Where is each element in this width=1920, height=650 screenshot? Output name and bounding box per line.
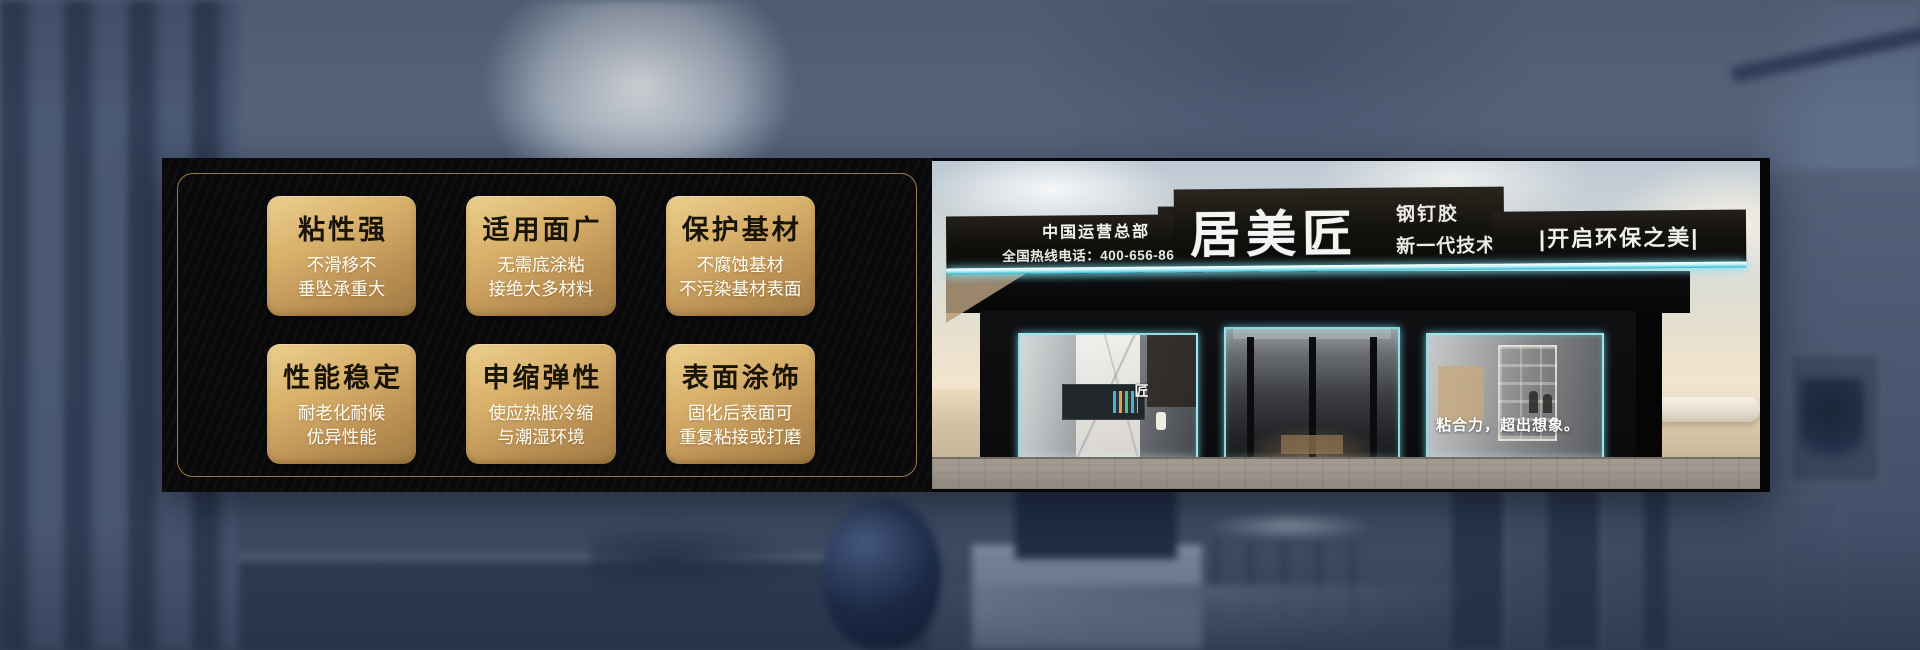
interior-figure [1543,394,1552,413]
feature-title: 申缩弹性 [482,356,602,395]
feature-line: 耐老化耐候 [298,402,386,426]
display-window-left: 匠 [1018,333,1198,465]
feature-card: 性能稳定 耐老化耐候 优异性能 [267,344,416,464]
feature-card: 申缩弹性 使应热胀冷缩 与潮湿环境 [466,344,615,464]
feature-line: 接绝大多材料 [488,278,593,302]
interior-shelf [1147,335,1196,407]
promo-banner: 粘性强 不滑移不 垂坠承重大 适用面广 无需底涂粘 接绝大多材料 保护基材 [162,158,1770,492]
banner-screenshot: 粘性强 不滑移不 垂坠承重大 适用面广 无需底涂粘 接绝大多材料 保护基材 [0,0,1920,650]
storefront-signage: 中国运营总部 全国热线电话：400-656-8678 居美匠 钢钉胶 新一代技术… [932,161,1760,289]
feature-line: 与潮湿环境 [488,426,593,450]
feature-card: 粘性强 不滑移不 垂坠承重大 [267,196,416,316]
eco-slogan: |开启环保之美| [1539,220,1700,253]
white-vase [1156,412,1166,430]
product-name: 钢钉胶 [1396,199,1496,227]
sign-right-section: |开启环保之美| [1492,210,1746,264]
entrance-door [1224,327,1400,467]
feature-description: 固化后表面可 重复粘接或打磨 [679,402,802,449]
feature-line: 不腐蚀基材 [679,254,802,278]
feature-description: 耐老化耐候 优异性能 [298,402,386,449]
feature-title: 表面涂饰 [682,356,802,395]
cobblestone-pavement [932,457,1760,489]
storefront-photo: 匠 粘合力，超出想象。 [932,161,1760,489]
feature-line: 重复粘接或打磨 [679,426,802,450]
hotline-number: 全国热线电话：400-656-8678 [1002,243,1190,265]
feature-description: 无需底涂粘 接绝大多材料 [488,254,593,301]
feature-line: 不污染基材表面 [679,278,802,302]
brand-name: 居美匠 [1190,194,1359,267]
feature-title: 粘性强 [298,208,388,247]
hq-label: 中国运营总部 [1042,218,1150,243]
feature-description: 不腐蚀基材 不污染基材表面 [679,254,802,301]
feature-line: 优异性能 [298,426,386,450]
sign-center-section: 居美匠 钢钉胶 新一代技术 [1174,187,1505,267]
product-display-screen [1062,384,1145,421]
feature-card: 保护基材 不腐蚀基材 不污染基材表面 [666,196,815,316]
feature-line: 使应热胀冷缩 [488,402,593,426]
feature-title: 性能稳定 [283,356,403,395]
brand-subtitle-block: 钢钉胶 新一代技术 [1396,199,1497,259]
glass-brand-logo: 匠 [1134,381,1148,401]
feature-card-grid: 粘性强 不滑移不 垂坠承重大 适用面广 无需底涂粘 接绝大多材料 保护基材 [267,196,815,464]
feature-line: 无需底涂粘 [488,254,593,278]
door-frame [1370,337,1377,465]
feature-card: 表面涂饰 固化后表面可 重复粘接或打磨 [666,344,815,464]
interior-counter [1281,435,1343,454]
feature-line: 固化后表面可 [679,402,802,426]
door-frame [1247,337,1254,465]
white-bench [1654,397,1760,422]
feature-line: 垂坠承重大 [298,278,386,302]
glass-slogan: 粘合力，超出想象。 [1436,414,1580,435]
interior-figure [1529,391,1538,413]
feature-title: 适用面广 [482,208,602,247]
technology-label: 新一代技术 [1396,231,1496,259]
feature-description: 使应热胀冷缩 与潮湿环境 [488,402,593,449]
feature-line: 不滑移不 [298,254,386,278]
feature-panel: 粘性强 不滑移不 垂坠承重大 适用面广 无需底涂粘 接绝大多材料 保护基材 [162,158,932,492]
feature-description: 不滑移不 垂坠承重大 [298,254,386,301]
feature-title: 保护基材 [682,208,802,247]
feature-card: 适用面广 无需底涂粘 接绝大多材料 [466,196,615,316]
display-window-right: 粘合力，超出想象。 [1426,333,1604,465]
